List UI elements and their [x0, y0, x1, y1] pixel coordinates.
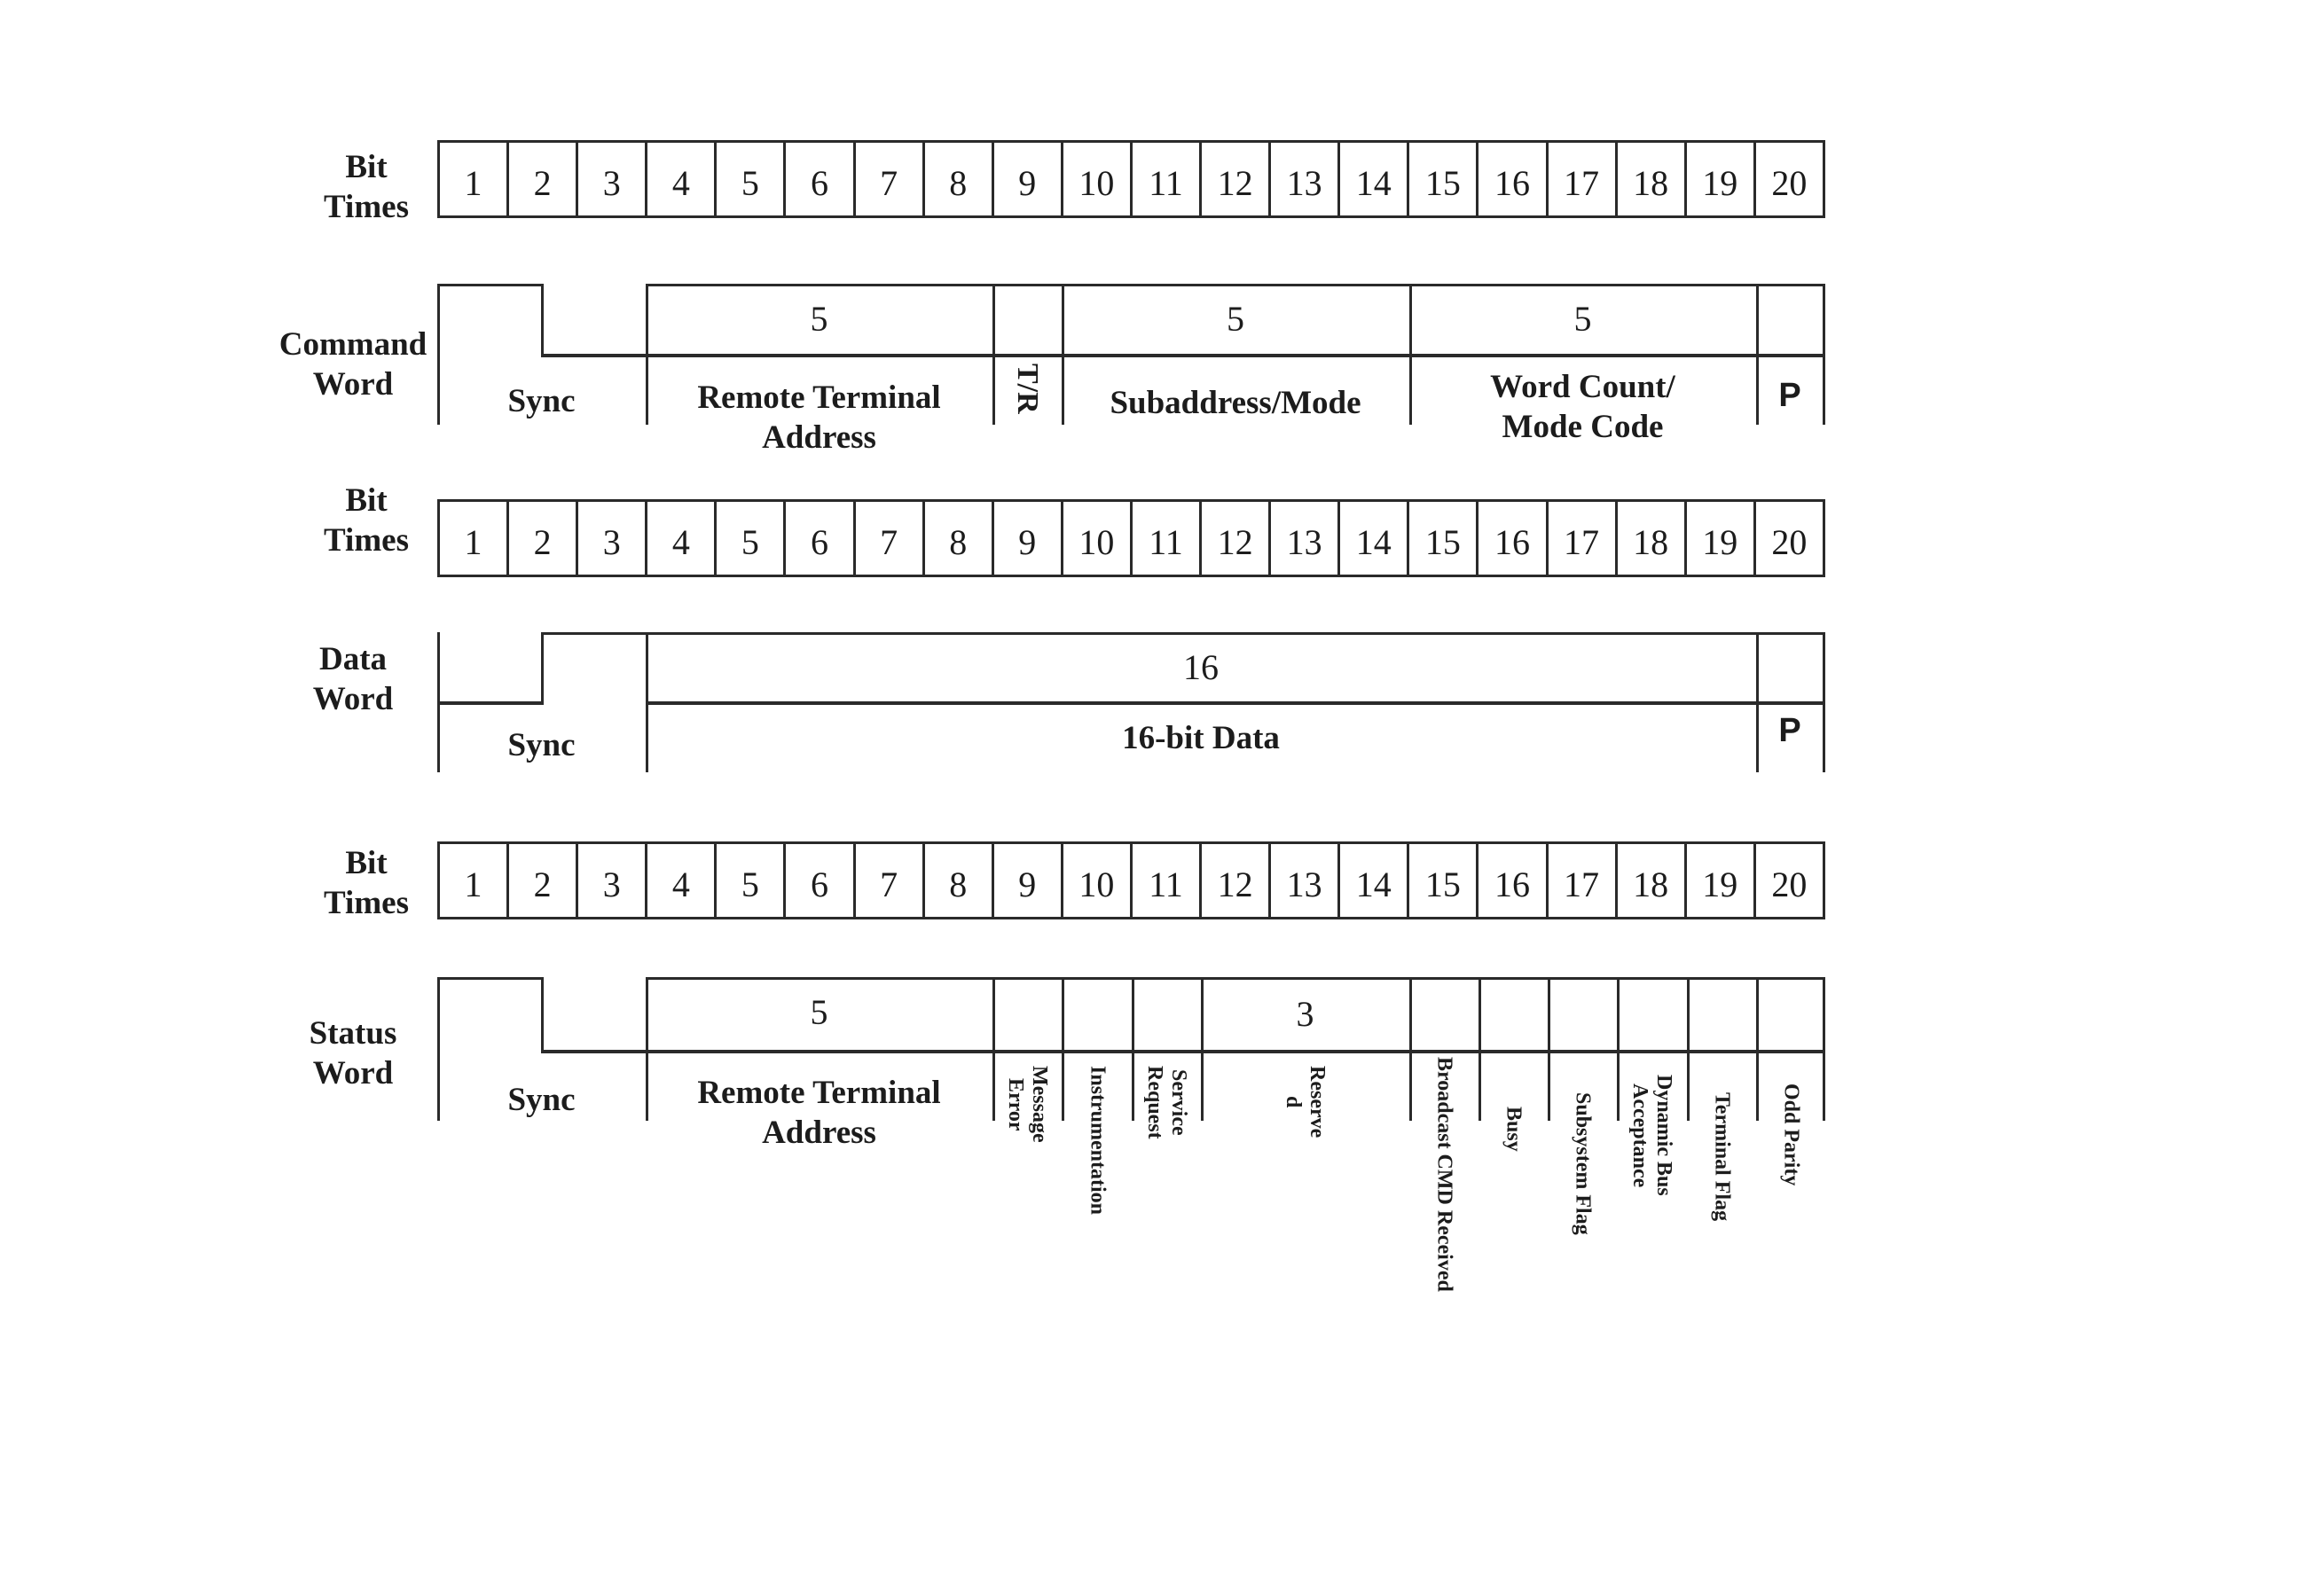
bit-times-label: Bit Times: [286, 147, 446, 227]
bit-cell: 18: [1615, 143, 1684, 215]
bit-cell: 12: [1199, 143, 1268, 215]
mil-std-1553-word-format-diagram: Bit Times 123456789101112131415161718192…: [0, 0, 2306, 1596]
bit-cell: 4: [645, 143, 714, 215]
status-sync-step-line: [541, 977, 544, 1053]
bit-cell: 18: [1615, 502, 1684, 575]
command-word-count-label: Word Count/ Mode Code: [1409, 367, 1756, 447]
status-border: [1756, 977, 1759, 1121]
status-reserved-count: 3: [1201, 995, 1409, 1034]
bit-cell: 20: [1753, 502, 1823, 575]
command-subaddress-count: 5: [1062, 300, 1409, 339]
command-sync-step-line: [541, 284, 544, 357]
bit-cell: 15: [1407, 143, 1476, 215]
bit-cell: 2: [506, 143, 576, 215]
bit-cell: 6: [783, 844, 852, 917]
status-border: [1062, 977, 1064, 1121]
bit-cell: 3: [576, 844, 645, 917]
bit-cell: 5: [714, 502, 783, 575]
bit-times-label: Bit Times: [286, 481, 446, 560]
bit-cell: 8: [922, 502, 992, 575]
status-bit-message-error: Message Error: [1003, 1066, 1051, 1143]
bit-cell: 5: [714, 844, 783, 917]
bit-cell: 8: [922, 143, 992, 215]
bit-cell: 20: [1753, 844, 1823, 917]
bit-cell: 13: [1268, 502, 1337, 575]
bit-cell: 17: [1546, 502, 1615, 575]
command-sync-high-line: [437, 284, 544, 286]
bit-times-row-1: 1234567891011121314151617181920: [437, 140, 1825, 218]
status-bit-broadcast-cmd-received: Broadcast CMD Received: [1432, 1057, 1456, 1292]
status-rta-label: Remote Terminal Address: [646, 1073, 992, 1153]
status-bit-busy: Busy: [1502, 1107, 1526, 1152]
status-bit-odd-parity: Odd Parity: [1779, 1084, 1803, 1185]
bit-times-row-2: 1234567891011121314151617181920: [437, 499, 1825, 577]
data-border: [1756, 632, 1759, 772]
bit-cell: 10: [1061, 502, 1130, 575]
bit-times-row-3: 1234567891011121314151617181920: [437, 841, 1825, 919]
bit-cell: 17: [1546, 143, 1615, 215]
command-parity-label: P: [1756, 377, 1824, 415]
bit-cell: 8: [922, 844, 992, 917]
bit-cell: 15: [1407, 844, 1476, 917]
command-word-title: Command Word: [247, 325, 459, 404]
status-bit-reserved: Reserve d: [1281, 1066, 1329, 1138]
bit-cell: 1: [440, 502, 506, 575]
status-rta-count: 5: [646, 993, 992, 1032]
bit-cell: 10: [1061, 844, 1130, 917]
bit-cell: 13: [1268, 143, 1337, 215]
bit-cell: 19: [1684, 844, 1753, 917]
bit-cell: 12: [1199, 844, 1268, 917]
data-word-title: Data Word: [247, 639, 459, 719]
status-border: [1479, 977, 1481, 1121]
command-border: [992, 284, 995, 425]
bit-cell: 16: [1476, 143, 1545, 215]
data-top-line: [541, 632, 1825, 635]
data-mid-line: [646, 701, 1825, 705]
bit-cell: 4: [645, 844, 714, 917]
bit-cell: 15: [1407, 502, 1476, 575]
status-bit-dynamic-bus-acceptance: Dynamic Bus Acceptance: [1628, 1075, 1675, 1196]
bit-cell: 11: [1130, 844, 1199, 917]
bit-cell: 11: [1130, 143, 1199, 215]
bit-cell: 9: [992, 502, 1061, 575]
data-sync-label: Sync: [437, 725, 646, 765]
bit-cell: 1: [440, 844, 506, 917]
status-top-line: [646, 977, 1825, 980]
bit-cell: 14: [1337, 844, 1407, 917]
status-border: [1132, 977, 1134, 1121]
data-field-label: 16-bit Data: [646, 718, 1756, 758]
command-top-line: [646, 284, 1825, 286]
status-mid-line: [541, 1050, 1825, 1053]
status-sync-high-line: [437, 977, 544, 980]
bit-cell: 20: [1753, 143, 1823, 215]
bit-cell: 17: [1546, 844, 1615, 917]
bit-cell: 6: [783, 502, 852, 575]
bit-cell: 14: [1337, 502, 1407, 575]
bit-cell: 9: [992, 844, 1061, 917]
status-bit-terminal-flag: Terminal Flag: [1710, 1092, 1734, 1221]
command-rta-label: Remote Terminal Address: [646, 378, 992, 458]
bit-cell: 6: [783, 143, 852, 215]
status-bit-service-request: Service Request: [1142, 1066, 1190, 1139]
data-right-line: [1823, 632, 1825, 772]
bit-cell: 7: [853, 143, 922, 215]
bit-cell: 19: [1684, 143, 1753, 215]
status-bit-subsystem-flag: Subsystem Flag: [1571, 1092, 1595, 1235]
bit-cell: 18: [1615, 844, 1684, 917]
command-word-count-count: 5: [1409, 300, 1756, 339]
data-sync-step-line: [541, 632, 544, 705]
bit-cell: 7: [853, 844, 922, 917]
bit-cell: 19: [1684, 502, 1753, 575]
bit-cell: 4: [645, 502, 714, 575]
command-tr-label: T/R: [1011, 364, 1043, 414]
bit-cell: 16: [1476, 502, 1545, 575]
status-sync-label: Sync: [437, 1080, 646, 1120]
status-right-line: [1823, 977, 1825, 1121]
status-bit-instrumentation: Instrumentation: [1086, 1066, 1110, 1215]
bit-cell: 7: [853, 502, 922, 575]
command-sync-label: Sync: [437, 381, 646, 421]
bit-times-label: Bit Times: [286, 843, 446, 923]
bit-cell: 2: [506, 502, 576, 575]
bit-cell: 3: [576, 502, 645, 575]
command-subaddress-label: Subaddress/Mode: [1062, 383, 1409, 423]
bit-cell: 9: [992, 143, 1061, 215]
status-border: [992, 977, 995, 1121]
status-border: [1617, 977, 1620, 1121]
status-word-title: Status Word: [247, 1013, 459, 1093]
bit-cell: 13: [1268, 844, 1337, 917]
bit-cell: 10: [1061, 143, 1130, 215]
data-field-count: 16: [646, 648, 1756, 687]
bit-cell: 5: [714, 143, 783, 215]
data-parity-label: P: [1756, 712, 1824, 750]
bit-cell: 16: [1476, 844, 1545, 917]
status-border: [1548, 977, 1550, 1121]
status-border: [1409, 977, 1412, 1121]
data-sync-low-line: [437, 701, 544, 705]
bit-cell: 11: [1130, 502, 1199, 575]
bit-cell: 12: [1199, 502, 1268, 575]
bit-cell: 2: [506, 844, 576, 917]
bit-cell: 1: [440, 143, 506, 215]
command-rta-count: 5: [646, 300, 992, 339]
bit-cell: 3: [576, 143, 645, 215]
status-border: [1687, 977, 1690, 1121]
command-mid-line: [541, 354, 1825, 357]
bit-cell: 14: [1337, 143, 1407, 215]
